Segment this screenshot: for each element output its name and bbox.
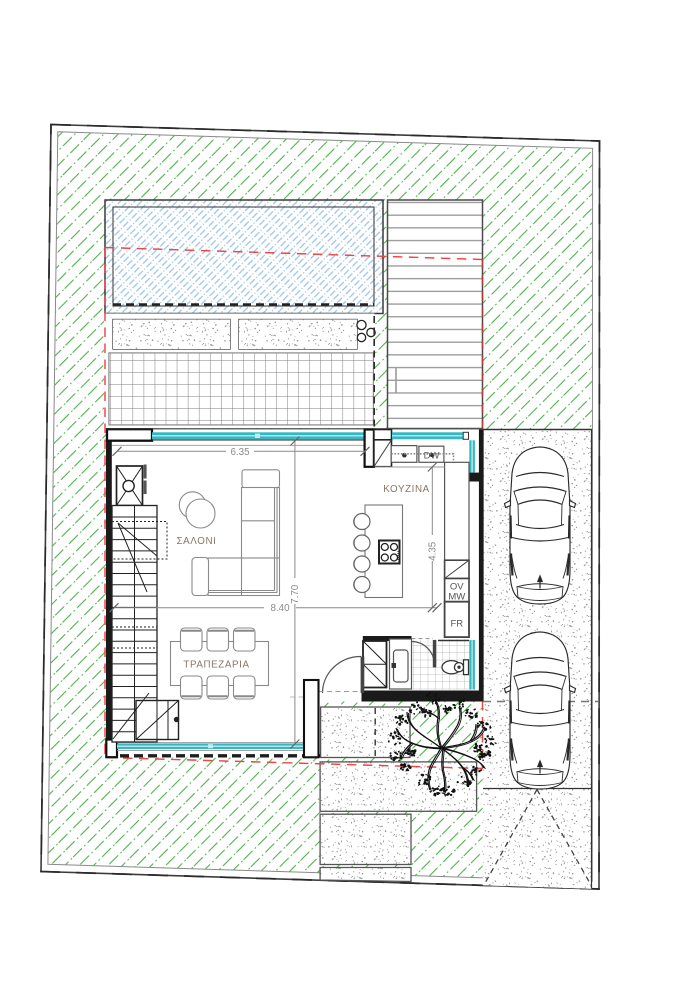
svg-text:ΣΑΛΟΝΙ: ΣΑΛΟΝΙ [177,536,217,547]
svg-text:FR: FR [450,619,463,630]
svg-text:8.40: 8.40 [270,603,290,614]
svg-text:ΚΟΥΖΙΝΑ: ΚΟΥΖΙΝΑ [383,484,430,495]
svg-text:7.70: 7.70 [290,584,301,604]
svg-text:MW: MW [448,591,465,602]
svg-text:6.35: 6.35 [230,447,250,458]
svg-text:4.35: 4.35 [428,541,439,561]
svg-text:ΤΡΑΠΕΖΑΡΙΑ: ΤΡΑΠΕΖΑΡΙΑ [183,660,249,671]
